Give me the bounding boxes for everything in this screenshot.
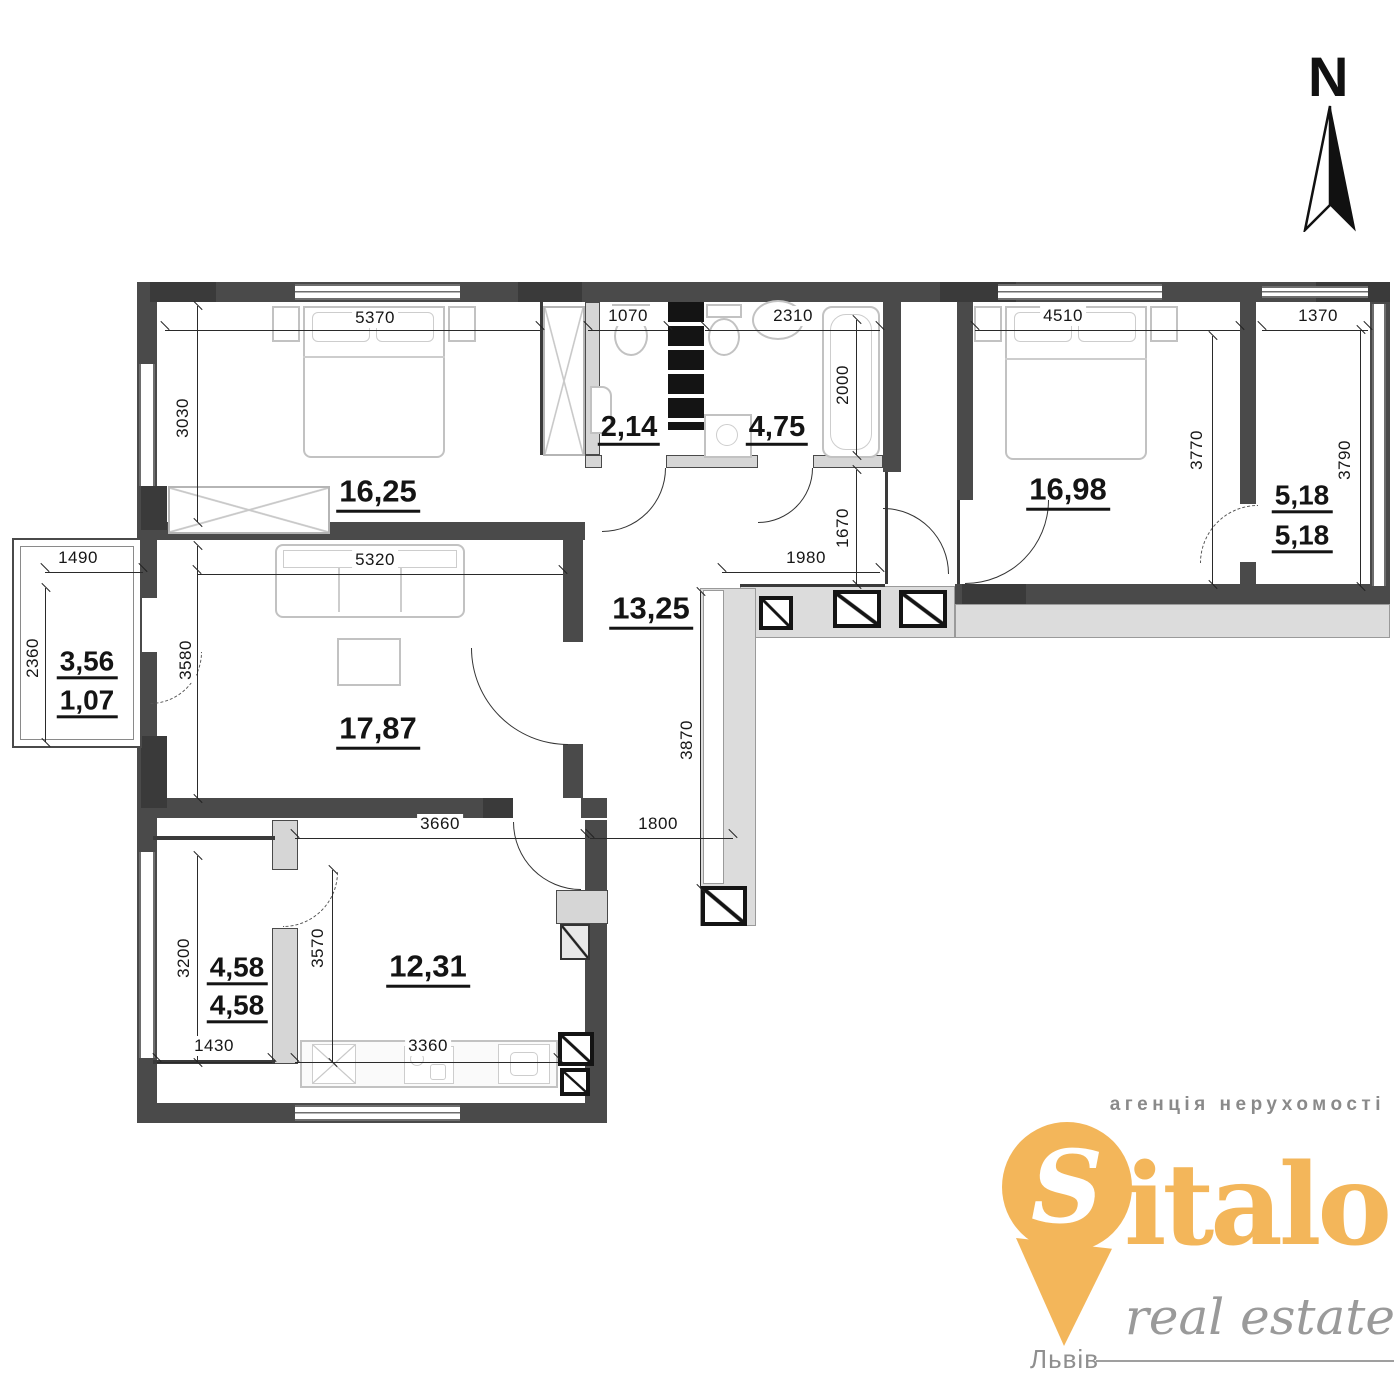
dim-line (588, 330, 668, 331)
dim-entry-passage: 1670 (833, 505, 853, 551)
wall-bedroom2-balcony-bottom (1240, 562, 1256, 586)
shaft-box (833, 590, 881, 628)
dim-kitchen-top-width: 3660 (417, 814, 463, 834)
wardrobe (168, 486, 330, 534)
logo-brand-initial: S (1002, 1122, 1132, 1252)
corridor-band-right (955, 604, 1390, 638)
logo-brand-text: italo (1124, 1140, 1388, 1271)
area-label-loggia-top: 3,56 (57, 646, 118, 679)
dim-bedroom1-width: 5370 (352, 308, 398, 328)
dim-line (1262, 330, 1368, 331)
dim-hall-depth: 3870 (677, 717, 697, 763)
door-arc-balcony-bottom (283, 872, 338, 927)
dim-living-depth: 3580 (176, 637, 196, 683)
dim-line (1212, 336, 1213, 584)
dim-line (165, 330, 540, 331)
nightstand (1150, 306, 1178, 342)
window-bedroom1 (295, 284, 460, 300)
door-arc-living (471, 648, 568, 745)
dim-line (197, 546, 198, 798)
area-label-wc: 2,14 (598, 412, 660, 446)
shaft-box (558, 1032, 594, 1066)
dim-bedroom2-width: 4510 (1040, 306, 1086, 326)
pillar (141, 736, 167, 808)
north-arrow-icon (1302, 104, 1358, 232)
dim-bedroom2-depth: 3770 (1187, 427, 1207, 473)
door-gap-kitchen (513, 798, 581, 818)
vent-shaft (668, 302, 704, 430)
north-label: N (1308, 44, 1348, 109)
dim-line (197, 856, 198, 1062)
area-label-kitchen: 12,31 (386, 951, 470, 988)
window-bedroom2 (998, 284, 1162, 300)
coffee-table (337, 638, 401, 686)
dim-line (197, 306, 198, 522)
blanket-line (303, 356, 445, 358)
shaft-box (759, 596, 793, 630)
dim-kitchen-width: 3360 (405, 1036, 451, 1056)
pillow (1078, 312, 1136, 342)
window-balcony-right-top (1262, 286, 1368, 298)
dim-line (295, 1062, 558, 1063)
pillar (962, 584, 1026, 604)
pillar (150, 282, 216, 302)
dim-line (705, 330, 880, 331)
floor-plan: 5370 1070 2310 4510 1370 3030 2000 1670 … (0, 0, 1400, 1400)
dim-living-width: 5320 (352, 550, 398, 570)
blanket-line (1005, 358, 1147, 360)
nightstand (974, 306, 1002, 342)
dim-balcony-bottom-depth: 3200 (174, 935, 194, 981)
dim-line (45, 572, 143, 573)
washing-machine-door (716, 424, 738, 446)
door-arc-wc (602, 468, 666, 532)
dim-line (856, 470, 857, 584)
corridor-leg-inner (703, 590, 724, 884)
dim-line (700, 592, 701, 888)
dim-balcony-bottom-width: 1430 (191, 1036, 237, 1056)
window-balcony-bottom-left (139, 852, 155, 1058)
door-arc-entrance (883, 508, 949, 574)
area-label-loggia-bottom: 1,07 (57, 685, 118, 718)
logo-city: Львів (1030, 1344, 1099, 1375)
logo-subtitle: real estate (1090, 1288, 1395, 1346)
area-label-balcony-bottom-bottom: 4,58 (207, 990, 268, 1023)
dim-line (975, 330, 1240, 331)
area-label-bedroom1: 16,25 (336, 476, 420, 513)
wall-stub-kitchen-door (556, 890, 608, 924)
stove-burner (430, 1064, 446, 1080)
area-label-balcony-right-bottom: 5,18 (1272, 520, 1333, 553)
shaft-box (701, 886, 747, 926)
line-passage-right (957, 500, 960, 584)
dim-hall-width: 1980 (783, 548, 829, 568)
toilet-tank (706, 304, 742, 318)
toilet-bowl (708, 318, 740, 356)
area-label-bathroom: 4,75 (746, 412, 808, 446)
window-balcony-right-side (1372, 304, 1386, 586)
hatch-column (560, 924, 590, 960)
dim-line (157, 1062, 272, 1063)
dim-balcony-right-width: 1370 (1295, 306, 1341, 326)
area-label-bedroom2: 16,98 (1026, 474, 1110, 511)
partition-balcony-kitchen-bottom (272, 928, 298, 1064)
partition-balcony-kitchen-top (272, 820, 298, 870)
door-arc-balcony-right (1200, 505, 1258, 563)
dim-line (197, 574, 563, 575)
pillar (141, 486, 167, 530)
window-bedroom1-left (139, 364, 155, 486)
area-label-balcony-bottom-top: 4,58 (207, 952, 268, 985)
logo-divider (1096, 1360, 1394, 1362)
nightstand (448, 306, 476, 342)
wall-bedroom2-balcony-top (1240, 302, 1256, 504)
dim-line (722, 572, 880, 573)
area-label-balcony-right-top: 5,18 (1272, 480, 1333, 513)
door-arc-bedroom2 (965, 500, 1049, 584)
dim-bathroom-width: 2310 (770, 306, 816, 326)
dim-kitchen-depth: 3570 (308, 925, 328, 971)
pillar (518, 282, 582, 302)
kitchen-sink-bowl (510, 1052, 538, 1076)
dim-line (295, 838, 585, 839)
balcony-bottom-frame-top (153, 836, 275, 840)
dim-loggia-depth: 2360 (23, 635, 43, 681)
line-hall-south (740, 584, 885, 587)
wall-living-right-top (563, 540, 583, 642)
partition-hall-a (585, 455, 602, 468)
window-kitchen (295, 1105, 460, 1121)
wall-bedroom2-left (957, 302, 973, 500)
door-arc-kitchen (513, 822, 581, 890)
dim-hall-bottom: 1800 (635, 814, 681, 834)
dim-line (332, 870, 333, 1062)
dim-balcony-right-depth: 3790 (1335, 437, 1355, 483)
wall-living-right-bottom (563, 744, 583, 798)
nightstand (272, 306, 300, 342)
shaft-box (899, 590, 947, 628)
door-arc-bathroom (758, 468, 813, 523)
dim-line (590, 838, 733, 839)
logo-tagline: агенція нерухомості (1040, 1094, 1385, 1116)
dim-line (1360, 330, 1361, 586)
dim-bedroom1-depth: 3030 (173, 395, 193, 441)
dim-line (856, 320, 857, 455)
area-label-living: 17,87 (336, 713, 420, 750)
shaft-box (560, 1068, 590, 1096)
wall-bathroom-right (883, 302, 901, 472)
dim-bathtub-length: 2000 (833, 362, 853, 408)
area-label-hallway: 13,25 (609, 593, 693, 630)
dim-loggia-width: 1490 (55, 548, 101, 568)
dim-wc-width: 1070 (605, 306, 651, 326)
dim-line (45, 588, 46, 742)
wardrobe (543, 306, 585, 456)
